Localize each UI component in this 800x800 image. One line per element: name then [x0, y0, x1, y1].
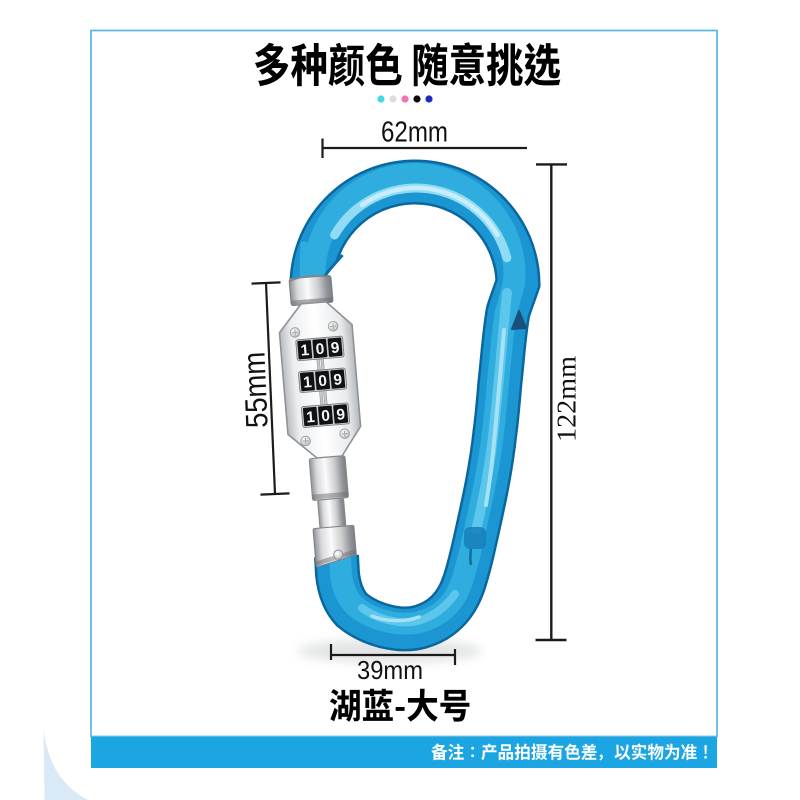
svg-text:0: 0 [321, 407, 331, 425]
svg-text:122mm: 122mm [552, 356, 582, 442]
svg-text:39mm: 39mm [357, 655, 423, 685]
svg-text:0: 0 [315, 341, 325, 359]
svg-text:55mm: 55mm [236, 351, 274, 428]
svg-text:0: 0 [318, 373, 328, 391]
svg-text:62mm: 62mm [381, 117, 448, 149]
